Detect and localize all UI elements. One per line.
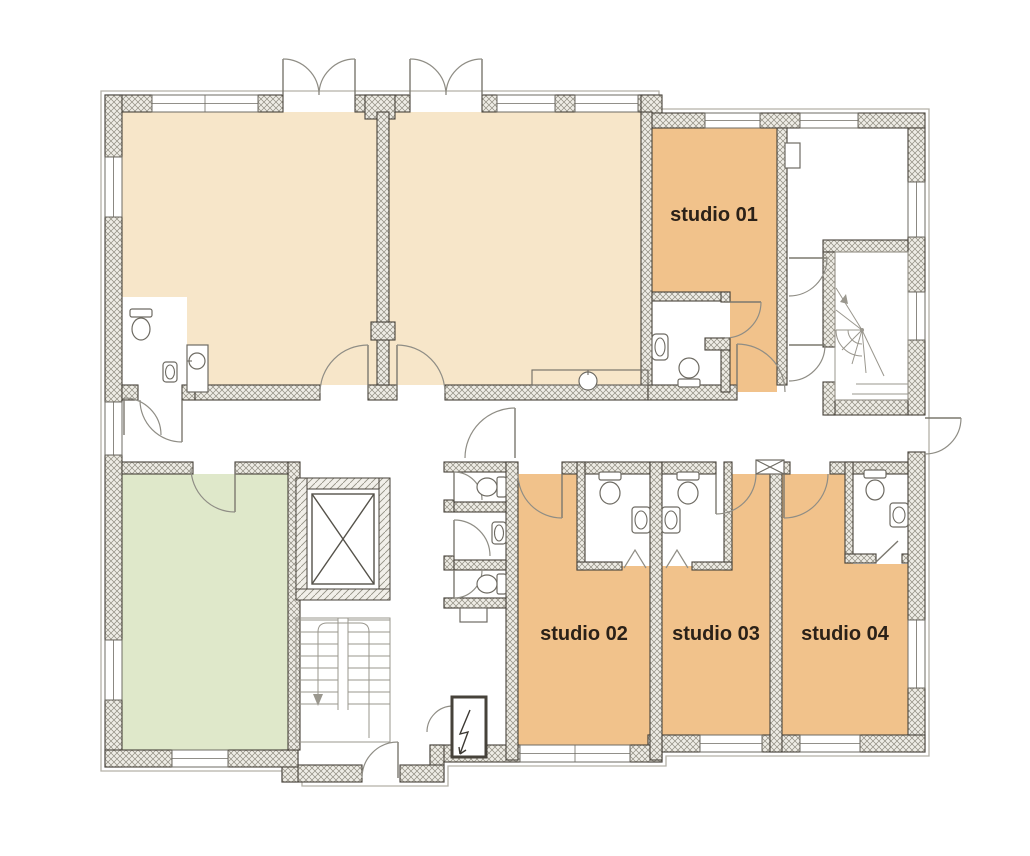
corner-sink-common-wc	[163, 362, 177, 382]
door-common-wc	[140, 400, 182, 442]
window-left-3	[105, 640, 122, 700]
floor-plan-drawing: studio 01 studio 02 studio 03 studio 04	[0, 0, 1030, 856]
label-studio-03: studio 03	[672, 623, 760, 645]
toilet-wc2	[477, 574, 506, 594]
toilet-bathroom-studio02	[599, 472, 621, 504]
toilet-bathroom-studio01	[678, 358, 700, 387]
stairs-main	[296, 618, 390, 742]
cabinet-under-wc-block	[460, 608, 487, 622]
window-bottom-green	[172, 750, 228, 767]
door-corridor-mid	[465, 408, 515, 458]
window-top-mid-1	[497, 95, 555, 112]
window-bottom-studio03	[700, 735, 762, 752]
door-exit-east	[925, 418, 961, 454]
door-vestibule-corridor	[789, 345, 825, 381]
window-top-studio01-1	[705, 113, 760, 128]
window-right-1	[908, 182, 925, 237]
wall-partition-mid-box	[371, 322, 395, 340]
window-left-2	[105, 402, 122, 455]
door-wc-vestibule	[454, 520, 490, 556]
door-entrance-south	[362, 742, 398, 778]
window-bottom-studio04	[800, 735, 860, 752]
wash-basin-common-left	[187, 345, 208, 392]
sink-wc-vestibule	[492, 522, 506, 544]
toilet-common-wc	[130, 309, 152, 340]
sink-bathroom-studio03	[662, 507, 680, 533]
stairs-winder	[835, 252, 908, 400]
door-electrical-closet	[427, 706, 453, 732]
window-top-mid-2	[575, 95, 638, 112]
sink-bathroom-studio04	[890, 503, 908, 527]
toilet-bathroom-studio03	[677, 472, 699, 504]
wall-partition-common-rooms	[377, 112, 389, 385]
toilet-wc1	[477, 477, 506, 497]
window-left-1	[105, 157, 122, 217]
label-studio-04: studio 04	[801, 623, 890, 645]
window-bottom-studio02	[520, 745, 630, 762]
window-right-3	[908, 620, 925, 688]
toilet-bathroom-studio04	[864, 470, 886, 500]
door-entrance-north-2	[410, 59, 482, 95]
sink-bathroom-studio02	[632, 507, 650, 533]
elevator-shaft	[296, 478, 390, 600]
sink-bathroom-studio01	[652, 334, 668, 360]
door-corridor-west	[124, 398, 161, 435]
utility-shaft-hall	[785, 143, 800, 168]
window-top-studio01-2	[800, 113, 858, 128]
window-top-left	[152, 95, 258, 112]
door-hall-vestibule	[789, 258, 827, 296]
window-right-2	[908, 292, 925, 340]
floor-plan-page: studio 01 studio 02 studio 03 studio 04	[0, 0, 1030, 856]
label-studio-01: studio 01	[670, 204, 758, 226]
room-common-right	[389, 112, 648, 385]
door-entrance-north-1	[283, 59, 355, 95]
vent-shaft-corridor	[756, 460, 784, 474]
room-green	[122, 474, 288, 750]
electrical-closet	[452, 697, 486, 757]
label-studio-02: studio 02	[540, 623, 628, 645]
